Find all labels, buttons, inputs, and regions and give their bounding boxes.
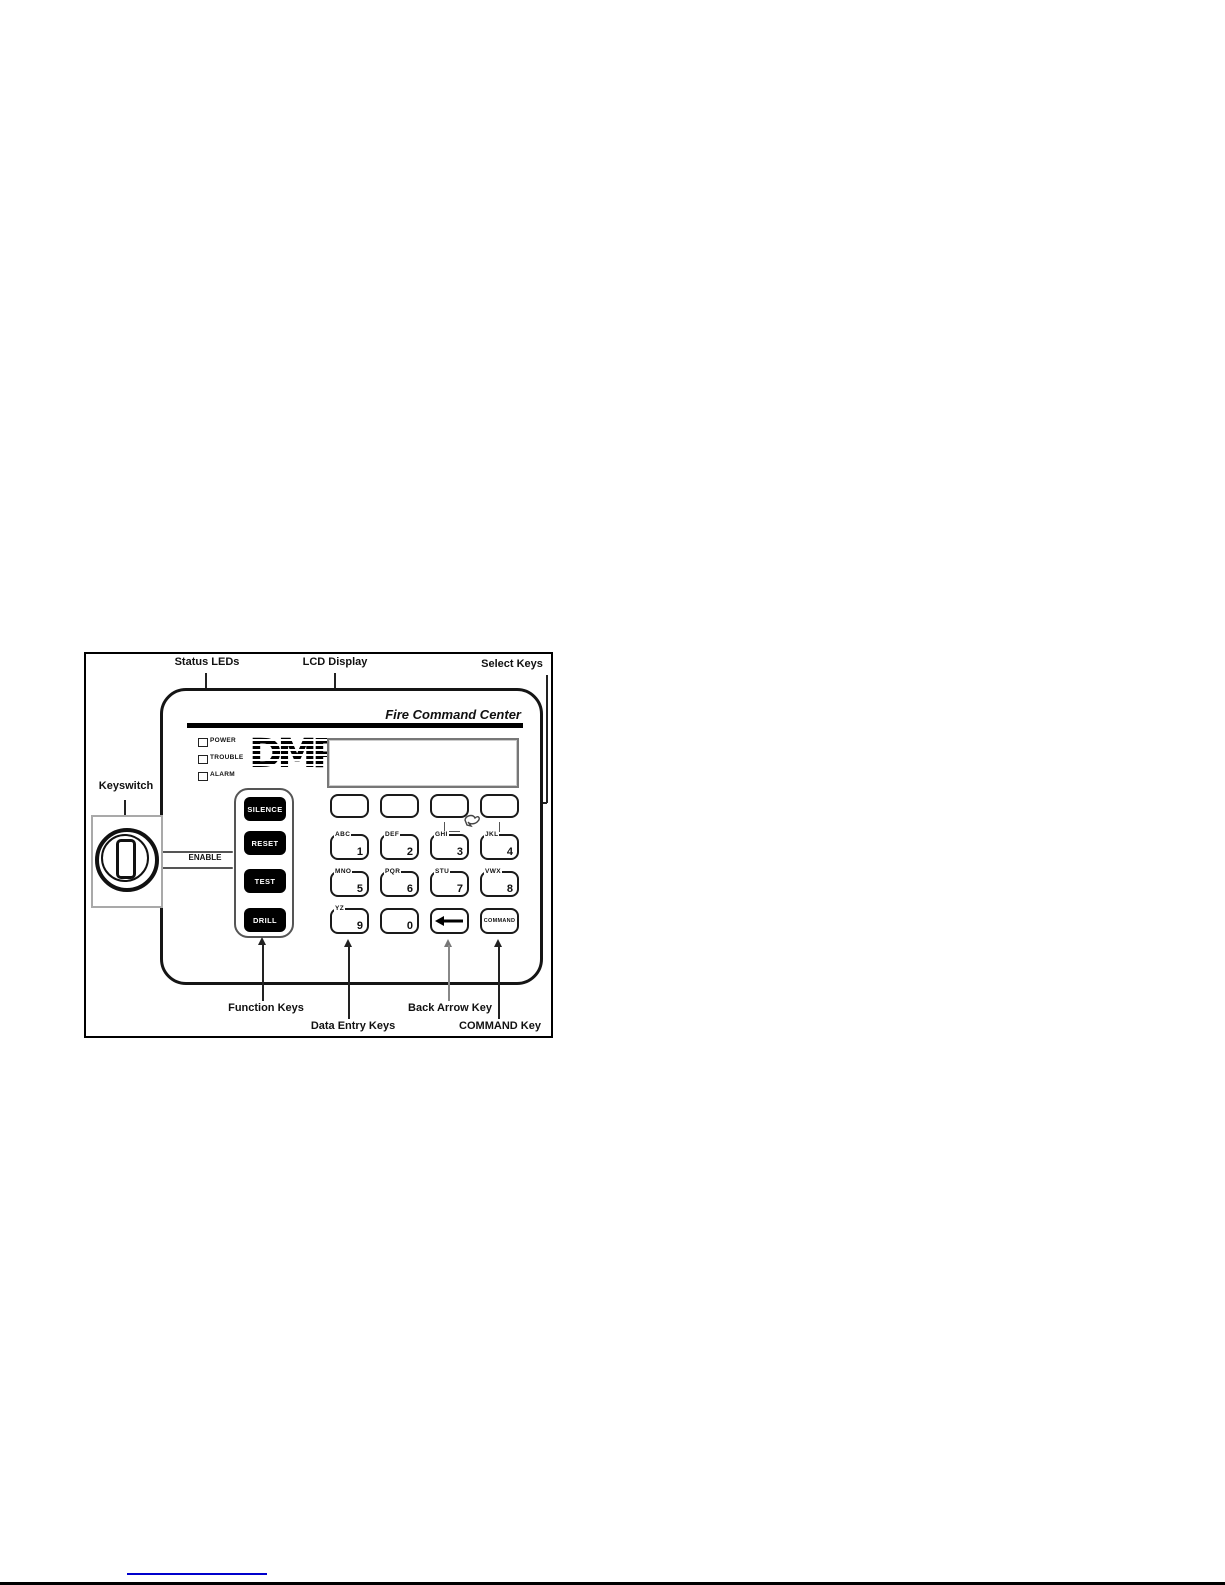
key-2-letters: DEF — [384, 831, 400, 838]
dmp-logo: DMP — [249, 731, 336, 777]
key-4-letters: JKL — [484, 831, 499, 838]
title-divider-bar — [187, 723, 523, 728]
label-back-arrow-key: Back Arrow Key — [403, 1002, 497, 1014]
key-4-digit: 4 — [507, 846, 513, 858]
key-8-letters: VWX — [484, 868, 502, 875]
key-1-digit: 1 — [357, 846, 363, 858]
key-9-letters: YZ — [334, 905, 345, 912]
command-key-label: COMMAND — [484, 918, 515, 924]
label-data-entry-keys: Data Entry Keys — [307, 1020, 399, 1032]
key-3-letters: GHI — [434, 831, 449, 838]
select-key-2 — [380, 794, 419, 818]
label-enable: ENABLE — [176, 853, 234, 862]
key-8-digit: 8 — [507, 883, 513, 895]
alarm-led-label: ALARM — [210, 771, 235, 778]
key-3-digit: 3 — [457, 846, 463, 858]
footer-link-underline[interactable] — [127, 1573, 267, 1575]
label-select-keys: Select Keys — [465, 658, 559, 670]
back-arrow-key — [430, 908, 469, 934]
data-entry-keys-leader-line — [348, 945, 350, 1019]
trouble-led-label: TROUBLE — [210, 754, 244, 761]
key-5-letters: MNO — [334, 868, 352, 875]
key-5-digit: 5 — [357, 883, 363, 895]
reset-key: RESET — [244, 831, 286, 855]
alarm-led-indicator — [198, 772, 208, 781]
test-key: TEST — [244, 869, 286, 893]
key-0-digit: 0 — [407, 920, 413, 932]
command-key: COMMAND — [480, 908, 519, 934]
key-6: PQR 6 — [380, 871, 419, 897]
back-arrow-icon — [432, 910, 467, 932]
key-2-digit: 2 — [407, 846, 413, 858]
keyswitch-slot — [116, 839, 136, 879]
hand-doodle-icon — [461, 812, 483, 832]
key-8: VWX 8 — [480, 871, 519, 897]
power-led-label: POWER — [210, 737, 236, 744]
select-key-4 — [480, 794, 519, 818]
key-3: GHI 3 — [430, 834, 469, 860]
command-key-leader-line — [498, 945, 500, 1019]
label-command-key: COMMAND Key — [453, 1020, 547, 1032]
silence-key: SILENCE — [244, 797, 286, 821]
key-1: ABC 1 — [330, 834, 369, 860]
key-2: DEF 2 — [380, 834, 419, 860]
fire-command-center-diagram: Status LEDs LCD Display Select Keys Fire… — [84, 652, 553, 1038]
back-arrow-key-leader-line — [448, 945, 450, 1001]
select-key-1 — [330, 794, 369, 818]
trouble-led-indicator — [198, 755, 208, 764]
label-status-leds: Status LEDs — [160, 656, 254, 668]
label-lcd-display: LCD Display — [288, 656, 382, 668]
key-4: JKL 4 — [480, 834, 519, 860]
key-5: MNO 5 — [330, 871, 369, 897]
enable-slot-line — [162, 867, 233, 869]
key-9: YZ 9 — [330, 908, 369, 934]
drill-key: DRILL — [244, 908, 286, 932]
label-keyswitch: Keyswitch — [88, 780, 164, 792]
key-0: 0 — [380, 908, 419, 934]
key-7-digit: 7 — [457, 883, 463, 895]
key-9-digit: 9 — [357, 920, 363, 932]
key-1-letters: ABC — [334, 831, 351, 838]
key-6-letters: PQR — [384, 868, 401, 875]
power-led-indicator — [198, 738, 208, 747]
function-keys-leader-line — [262, 943, 264, 1001]
keyswitch — [95, 828, 159, 892]
key-6-digit: 6 — [407, 883, 413, 895]
document-page: Status LEDs LCD Display Select Keys Fire… — [0, 0, 1225, 1585]
lcd-display — [327, 738, 519, 788]
label-function-keys: Function Keys — [221, 1002, 311, 1014]
key-7-letters: STU — [434, 868, 450, 875]
key-7: STU 7 — [430, 871, 469, 897]
panel-title: Fire Command Center — [321, 707, 521, 722]
select-keys-leader-line — [546, 675, 548, 803]
